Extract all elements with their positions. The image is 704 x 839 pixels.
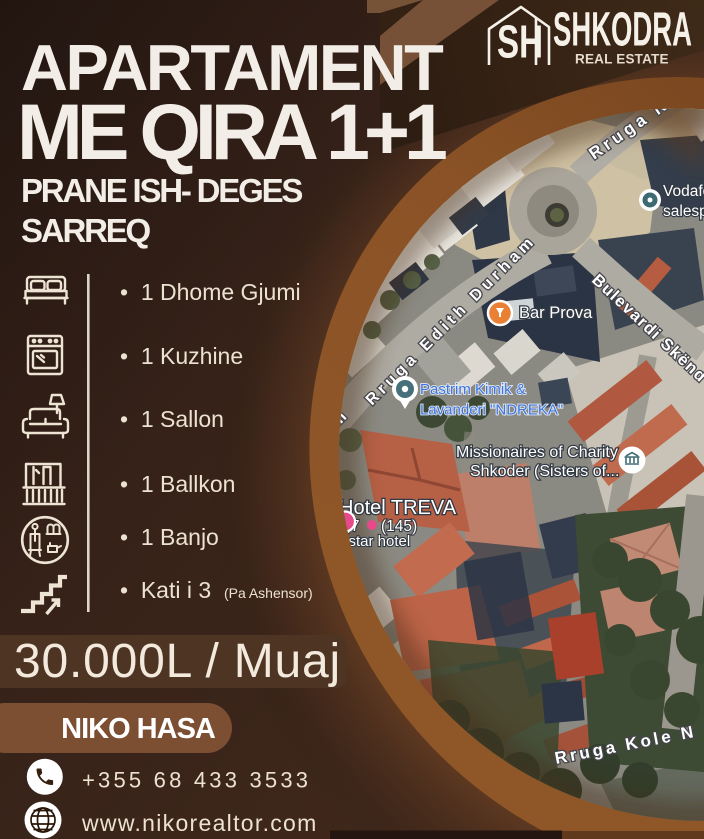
svg-text:• 1 Dhome Gjumi: • 1 Dhome Gjumi [120,279,301,305]
svg-text:SHKODRA: SHKODRA [553,4,692,57]
svg-text:www.nikorealtor.com: www.nikorealtor.com [81,810,318,836]
svg-text:ME QIRA 1+1: ME QIRA 1+1 [17,87,446,176]
svg-text:SH: SH [497,16,543,68]
svg-text:Bar Prova: Bar Prova [519,304,593,322]
svg-text:Vodafone: Vodafone [663,183,704,200]
svg-text:30.000L / Muaj: 30.000L / Muaj [14,635,341,688]
svg-text:Missionaires of Charity: Missionaires of Charity [456,444,618,461]
svg-text:• 1 Sallon: • 1 Sallon [120,406,224,432]
svg-text:Hotel TREVA: Hotel TREVA [339,497,457,519]
svg-text:• 1 Kuzhine: • 1 Kuzhine [120,343,243,369]
svg-text:Shkoder (Sisters of...: Shkoder (Sisters of... [470,463,619,480]
svg-text:• 1 Ballkon: • 1 Ballkon [120,471,235,497]
svg-text:Pastrim Kimik &: Pastrim Kimik & [420,381,526,398]
svg-text:NIKO HASA: NIKO HASA [61,713,216,745]
svg-text:Lavanderi "NDREKA": Lavanderi "NDREKA" [420,402,563,419]
svg-text:salespoint: salespoint [663,203,704,220]
svg-text:+355 68 433 3533: +355 68 433 3533 [82,768,311,793]
svg-text:REAL ESTATE: REAL ESTATE [575,52,671,67]
svg-text:SARREQ: SARREQ [21,212,151,249]
svg-text:PRANE ISH- DEGES: PRANE ISH- DEGES [21,172,302,209]
svg-text:• 1 Banjo: • 1 Banjo [120,524,219,550]
